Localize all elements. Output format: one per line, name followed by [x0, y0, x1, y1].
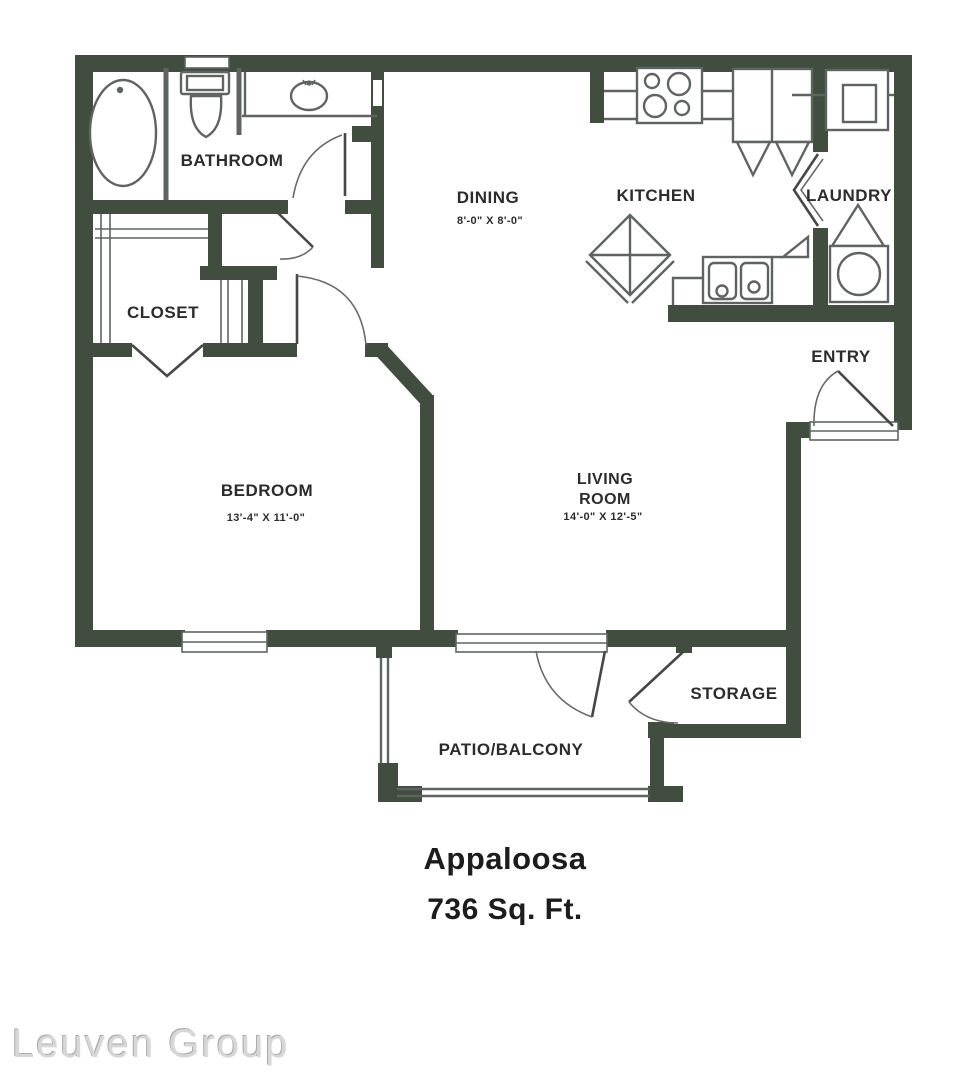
bedroom-label: BEDROOM	[221, 481, 313, 500]
patio-door-swing-icon	[536, 651, 605, 717]
plan-area-size: 736 Sq. Ft.	[427, 893, 583, 927]
closet-label: CLOSET	[127, 303, 199, 322]
storage-door-swing-icon	[629, 652, 683, 723]
bathtub-icon	[90, 80, 156, 186]
bedroom-door-swing-icon	[297, 274, 366, 345]
closet-bifold-door-icon	[132, 345, 203, 376]
watermark-text: Leuven Group	[12, 1022, 290, 1067]
entry-label: ENTRY	[811, 347, 871, 366]
washer-icon	[830, 205, 888, 302]
dining-dimensions: 8'-0" X 8'-0"	[457, 215, 523, 227]
hall-door-swing-icon	[277, 212, 313, 259]
refrigerator-icon	[733, 69, 812, 175]
bedroom-dimensions: 13'-4" X 11'-0"	[227, 512, 306, 524]
patio-slider-threshold	[456, 634, 607, 652]
vanity-sink-icon	[291, 80, 327, 110]
living-room-label-line2: ROOM	[579, 491, 631, 508]
dryer-icon	[826, 70, 888, 130]
toilet-icon	[181, 72, 229, 137]
kitchen-island-icon	[586, 215, 674, 303]
floor-plan-page: BATHROOM CLOSET BEDROOM 13'-4" X 11'-0" …	[0, 0, 964, 1080]
living-room-label-line1: LIVING	[577, 471, 633, 488]
dining-label: DINING	[457, 188, 520, 207]
entry-threshold	[810, 422, 898, 440]
kitchen-label: KITCHEN	[616, 186, 695, 205]
stove-icon	[637, 68, 702, 123]
patio-label: PATIO/BALCONY	[439, 740, 584, 759]
plan-title: Appaloosa	[424, 841, 587, 877]
bathroom-door-swing-icon	[293, 133, 345, 198]
storage-label: STORAGE	[690, 684, 777, 703]
kitchen-sink-icon	[673, 237, 808, 305]
entry-door-swing-icon	[814, 371, 893, 426]
laundry-label: LAUNDRY	[806, 186, 892, 205]
bathroom-label: BATHROOM	[181, 151, 284, 170]
living-room-dimensions: 14'-0" X 12'-5"	[563, 511, 642, 523]
patio-railing-icon	[381, 658, 650, 796]
